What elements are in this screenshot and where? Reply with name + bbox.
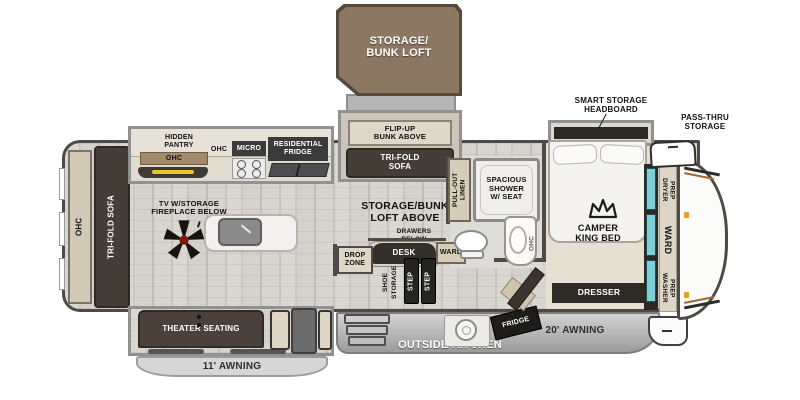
bunk-trifold-sofa: TRI-FOLD SOFA [346,148,454,178]
cap-light [684,292,689,298]
shoe-storage-line2: STORAGE [391,258,398,306]
rear-window [59,168,65,200]
dresser: DRESSER [552,283,646,303]
loft-label: STORAGE/ BUNK LOFT [346,30,452,64]
dryer-prep: DRYER PREP [660,166,676,214]
floorplan: OUTSIDE KITCHEN 20' AWNING FRIDGE OHC TR… [0,0,800,400]
smart-storage-label: SMART STORAGE HEADBOARD [556,96,666,116]
rear-ohc-cabinet: OHC [68,150,92,304]
crown-icon [586,198,620,220]
burner [252,160,261,169]
burner [237,169,246,178]
mirror-panel [646,168,656,210]
shower: SPACIOUS SHOWER W/ SEAT [473,158,540,222]
headboard [554,127,648,139]
king-bed-label: CAMPER KING BED [563,221,633,245]
dinette-table [291,308,317,354]
stove [232,158,266,179]
burner [252,169,261,178]
pillow [600,144,645,165]
island-sink [218,218,262,246]
mirror-panel [646,260,656,302]
counter-underlight [152,170,194,174]
shoe-storage-label: SHOE STORAGE [378,258,402,306]
bath-ohc: OHC [526,228,538,258]
rear-awning-band: 11' AWNING [136,356,328,377]
outside-sink-inner [462,326,471,335]
toilet-tank [460,250,484,259]
pull-out-linen: PULL-OUT LINEN [448,158,471,222]
pantry-ohc: OHC [140,152,208,165]
shower-label: SPACIOUS SHOWER W/ SEAT [478,167,535,211]
pass-thru-storage-box [649,140,696,168]
entry-steps [344,314,390,324]
flip-up-bunk: FLIP-UP BUNK ABOVE [348,120,452,146]
cap-light [684,212,689,218]
rear-window [59,258,65,290]
cup-holder [197,315,201,319]
residential-fridge: RESIDENTIAL FRIDGE [268,137,328,161]
pillow [553,144,598,165]
washer-prep: WASHER PREP [660,264,676,312]
cup-holder [197,323,201,327]
bath-wall-right [542,140,546,262]
dinette-chair [318,310,332,350]
burner [237,160,246,169]
mirror-panel [646,214,656,256]
entry-steps [348,336,386,346]
bedroom-ward: WARD [660,218,676,262]
theater-footrest [148,349,204,354]
step-2: STEP [421,258,436,304]
microwave: MICRO [232,141,266,156]
dinette-chair [270,310,290,350]
kitchen-ohc: OHC [206,144,232,155]
step-1: STEP [404,258,419,304]
theater-seating: THEATER SEATING [138,310,264,348]
storage-bunk-loft: STORAGE/ BUNK LOFT [336,4,462,96]
shoe-storage-line1: SHOE [382,258,389,306]
rear-window [59,212,65,246]
entry-steps [346,325,388,335]
bath-sink [509,226,527,254]
pass-thru-label: PASS-THRU STORAGE [660,112,750,134]
drop-zone: DROP ZONE [337,246,373,274]
front-step-handle [662,330,672,332]
rear-trifold-sofa: TRI-FOLD SOFA [94,146,130,308]
